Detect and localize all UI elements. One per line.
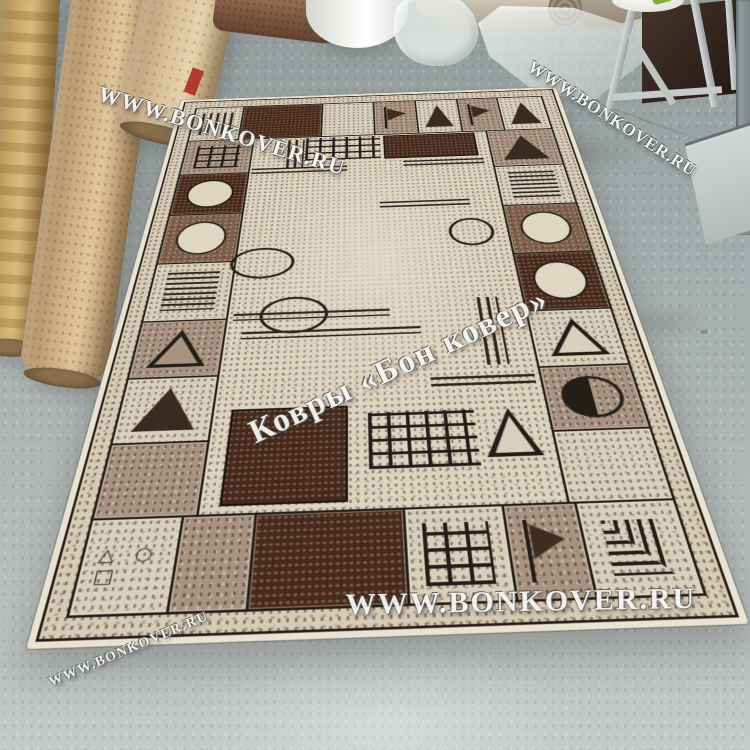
watermark-bottom: WWW.BONKOVER.RU — [345, 582, 696, 622]
motif-half-circle — [556, 375, 630, 419]
carpet-border-cell — [143, 262, 234, 321]
motif-tri-o — [145, 329, 211, 369]
carpet-border-cell — [457, 98, 503, 131]
motif-grid — [422, 521, 497, 587]
motif-tri-f — [423, 105, 454, 128]
red-label — [184, 67, 205, 96]
motif-bars-h — [430, 374, 536, 388]
carpet-border-cell — [129, 320, 226, 378]
carpet-border-cell — [169, 515, 255, 612]
motif-tri-o — [543, 317, 611, 356]
motif-shapes: △ ○ □ — [89, 532, 165, 599]
motif-tri-f — [499, 135, 550, 160]
motif-ellipse-f — [183, 180, 236, 208]
motif-grid — [368, 409, 481, 469]
carpet-border-cell — [94, 442, 207, 518]
motif-bars-h — [159, 271, 221, 311]
warehouse-scene: △ ○ □ WWW.BONKOVER.RU WWW.BONKOVER.RU Ко… — [0, 0, 750, 750]
motif-circle-f — [517, 211, 576, 245]
motif-tri-f — [130, 387, 201, 432]
motif-tri-f — [506, 102, 542, 124]
motif-bars-h — [380, 199, 471, 210]
motif-choco — [383, 133, 479, 159]
carpet-border-cell — [322, 103, 374, 137]
motif-tri-o — [481, 407, 545, 457]
motif-flag — [381, 106, 411, 129]
carpet-border-cell — [416, 100, 462, 133]
plastic-bag — [394, 0, 478, 66]
carpet-border-cell — [504, 203, 591, 252]
motif-bars-h — [507, 171, 562, 198]
motif-flag — [518, 518, 580, 583]
floor-mark — [700, 330, 708, 334]
carpet-border-cell — [374, 101, 418, 134]
carpet-border-cell — [170, 173, 248, 215]
motif-circle-o — [447, 217, 497, 246]
carpet-border-cell — [113, 377, 217, 444]
motif-labyrinth — [596, 515, 682, 581]
motif-flag — [465, 103, 497, 125]
carpet-border-cell — [495, 165, 575, 205]
motif-bars-h — [403, 158, 485, 168]
motif-circle-f — [172, 221, 229, 255]
carpet-border-cell — [487, 129, 563, 166]
carpet-border-cell — [158, 213, 242, 263]
motif-ellipse-o — [228, 247, 296, 280]
